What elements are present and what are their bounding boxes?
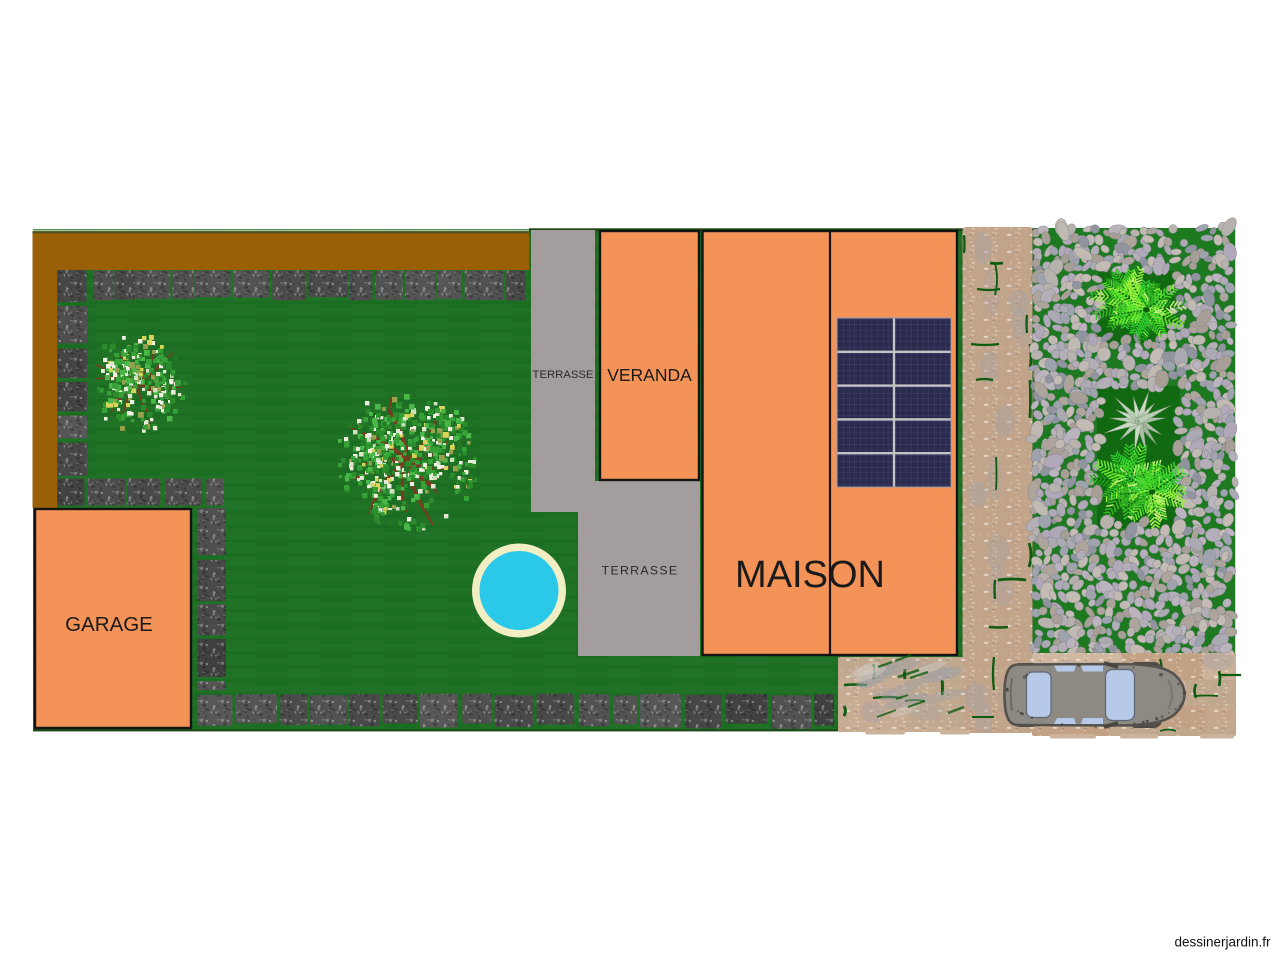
- svg-text:dessinerjardin.fr: dessinerjardin.fr: [1174, 935, 1271, 950]
- svg-text:TERRASSE: TERRASSE: [602, 564, 679, 578]
- svg-text:VERANDA: VERANDA: [607, 365, 692, 385]
- svg-text:TERRASSE: TERRASSE: [533, 369, 594, 381]
- svg-text:MAISON: MAISON: [735, 554, 885, 596]
- svg-text:GARAGE: GARAGE: [65, 613, 153, 636]
